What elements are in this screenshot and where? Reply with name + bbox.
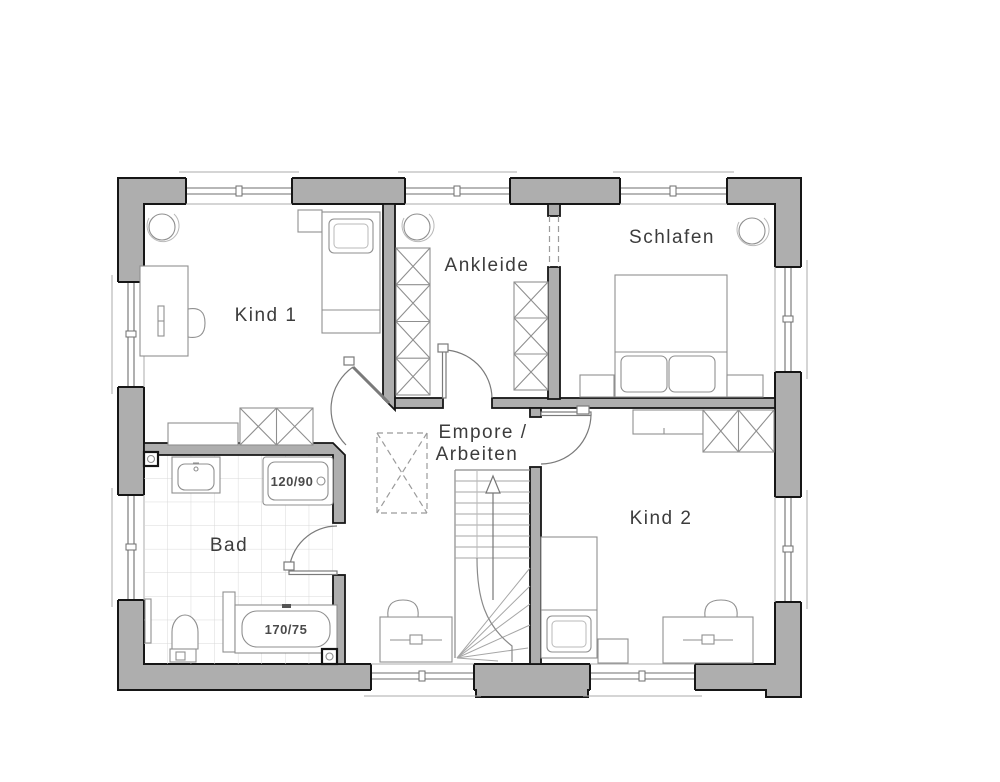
room-label-bad: Bad xyxy=(210,535,248,556)
wardrobe-ankleide-east xyxy=(514,282,548,390)
window-top-schlafen xyxy=(613,172,734,205)
wall-empore-kind2 xyxy=(530,467,541,664)
room-label-empore-line2: Arbeiten xyxy=(436,444,519,465)
chair-round-kind1 xyxy=(149,214,175,240)
wardrobe-ankleide-west xyxy=(396,248,430,395)
bathtub-dimension: 170/75 xyxy=(265,622,308,637)
wall-hall-east xyxy=(492,398,775,408)
room-schlafen: Schlafen xyxy=(580,218,769,397)
floor-plan-svg: Kind 1 Ankleide Schlafen xyxy=(0,0,1000,782)
wardrobe-kind1 xyxy=(240,408,313,445)
door-ankleide xyxy=(438,344,492,398)
window-top-ankleide xyxy=(398,172,517,205)
window-left-bad xyxy=(112,488,145,607)
sideboard-kind2 xyxy=(633,410,703,434)
desk-chair-kind1 xyxy=(188,309,205,338)
shower-dimension: 120/90 xyxy=(271,474,314,489)
door-kind2 xyxy=(541,406,591,464)
window-bottom-empore xyxy=(364,663,481,696)
wall-ankleide-schlafen-stub xyxy=(548,204,560,216)
shower: 120/90 xyxy=(263,457,333,505)
room-ankleide: Ankleide xyxy=(396,214,548,395)
nightstand-schlafen-right xyxy=(727,375,763,397)
room-label-empore-line1: Empore / xyxy=(438,422,527,443)
nightstand-schlafen-left xyxy=(580,375,614,397)
room-label-schlafen: Schlafen xyxy=(629,227,715,248)
desk-chair-kind2 xyxy=(705,600,737,617)
shaft-bad-north xyxy=(144,452,158,466)
toilet xyxy=(170,615,198,662)
room-label-ankleide: Ankleide xyxy=(445,255,530,276)
nightstand-kind1 xyxy=(298,210,322,232)
window-right-kind2 xyxy=(774,490,807,609)
wall-ankleide-schlafen xyxy=(548,267,560,399)
room-label-kind2: Kind 2 xyxy=(630,508,693,529)
room-empore: Empore / Arbeiten xyxy=(377,422,528,662)
wall-kind1-ankleide xyxy=(383,204,395,410)
stair-direction-arrow xyxy=(486,476,500,600)
wall-hall-west xyxy=(395,398,443,408)
chair-round-ankleide xyxy=(404,214,430,240)
nightstand-kind2 xyxy=(598,639,628,663)
radiator-bad xyxy=(145,599,151,643)
void-opening xyxy=(377,433,427,513)
window-bottom-kind2 xyxy=(583,663,702,696)
dresser-kind1 xyxy=(168,423,238,445)
pillow-schlafen-left xyxy=(621,356,667,392)
room-kind2: Kind 2 xyxy=(541,410,774,663)
desk-chair-empore xyxy=(388,600,418,617)
window-right-schlafen xyxy=(774,260,807,379)
window-top-kind1 xyxy=(179,172,299,205)
pillow-schlafen-right xyxy=(669,356,715,392)
wall-empore-kind2-stub xyxy=(530,408,541,417)
room-kind1: Kind 1 xyxy=(140,210,380,445)
shaft-bad-south xyxy=(322,649,337,664)
door-kind1 xyxy=(331,357,389,445)
passage-ankleide-schlafen xyxy=(550,216,559,267)
chair-round-schlafen xyxy=(739,218,765,244)
wardrobe-kind2 xyxy=(703,410,774,452)
staircase xyxy=(455,470,530,662)
washbasin xyxy=(172,457,220,493)
floor-plan-page: Kind 1 Ankleide Schlafen xyxy=(0,0,1000,782)
room-label-kind1: Kind 1 xyxy=(235,305,298,326)
